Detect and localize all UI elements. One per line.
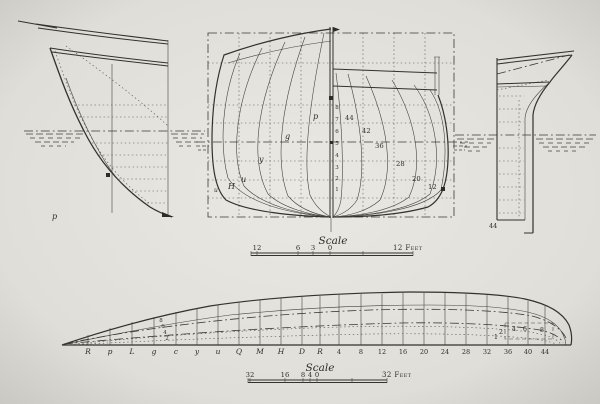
station-label: 20 — [420, 348, 428, 356]
station-label: 8 — [359, 348, 363, 356]
fore-section-label: y — [258, 155, 264, 164]
upper-scale-title: Scale — [319, 235, 348, 247]
station-label: y — [194, 347, 200, 356]
station-label: 40 — [524, 348, 532, 356]
station-label: Q — [236, 347, 242, 356]
aft-section-label: 36 — [375, 142, 384, 150]
upper-scale-tick-label: 12 — [253, 244, 262, 252]
aft-edge-marker-square — [441, 187, 445, 191]
upper-scale-tick-label: 3 — [311, 244, 315, 252]
aft-section-label: 20 — [412, 175, 421, 183]
station-label: 16 — [399, 348, 407, 356]
offset-label: 1 — [494, 333, 498, 341]
centerline-marker-square-2 — [330, 141, 333, 144]
paper-background — [0, 0, 600, 404]
station-label: 32 — [483, 348, 491, 356]
waterline-number: 7 — [335, 117, 339, 123]
upper-scale-end-label: 12 Feet — [393, 244, 423, 252]
lower-scale-tick-label: 0 — [315, 371, 319, 379]
aft-section-label: 42 — [362, 127, 371, 135]
offset-label: 8 — [540, 326, 544, 334]
fore-section-label: p — [313, 112, 318, 121]
station-label: H — [277, 347, 285, 356]
upper-scale-tick-label: 0 — [328, 244, 332, 252]
waterline-number: 2 — [335, 176, 339, 182]
fore-section-label: H — [227, 182, 236, 191]
station-label: g — [152, 347, 157, 356]
upper-scale-tick-label: 6 — [296, 244, 300, 252]
ship-lines-plan: p — [0, 0, 600, 404]
waterline-number: 8 — [335, 105, 339, 111]
waterline-number: 1 — [335, 187, 339, 193]
waterline-number: 4 — [335, 153, 339, 159]
station-label: 28 — [462, 348, 470, 356]
offset-label: 2 — [499, 328, 503, 336]
centerline-marker-square — [329, 96, 333, 100]
offset-label: 4 — [512, 325, 516, 333]
offset-label: 6 — [523, 325, 527, 333]
station-marker-square — [106, 173, 110, 177]
station-label: 4 — [337, 348, 341, 356]
station-label: L — [129, 347, 135, 356]
bow-mark-label: p — [52, 212, 57, 221]
station-label: M — [255, 347, 264, 356]
station-label: R — [84, 347, 91, 356]
lower-scale-end-label: 32 Feet — [382, 371, 412, 379]
aft-section-label: 44 — [345, 114, 354, 122]
lower-scale-tick-label: 32 — [246, 371, 255, 379]
lower-scale-tick-label: 16 — [281, 371, 290, 379]
waterline-number: 3 — [335, 165, 339, 171]
station-label: R — [316, 347, 323, 356]
fore-edge-label: u — [214, 187, 218, 194]
aft-section-label: 12 — [428, 183, 437, 191]
waterline-number: 5 — [335, 141, 339, 147]
lower-scale-tick-label: 8 — [301, 371, 305, 379]
waterline-number: 6 — [335, 129, 339, 135]
bow-waterline-number: 2 — [165, 336, 169, 342]
aft-section-label: 28 — [396, 160, 405, 168]
fore-section-label: g — [285, 132, 290, 141]
station-label: 12 — [378, 348, 386, 356]
station-label: u — [216, 347, 221, 356]
lower-scale-tick-label: 4 — [308, 371, 312, 379]
station-label: D — [298, 347, 305, 356]
station-label: 24 — [441, 348, 449, 356]
fore-section-label: u — [241, 175, 246, 184]
station-label: 44 — [541, 348, 549, 356]
stern-station-label: 44 — [489, 222, 497, 230]
station-label: p — [108, 347, 113, 356]
station-label: 36 — [504, 348, 512, 356]
